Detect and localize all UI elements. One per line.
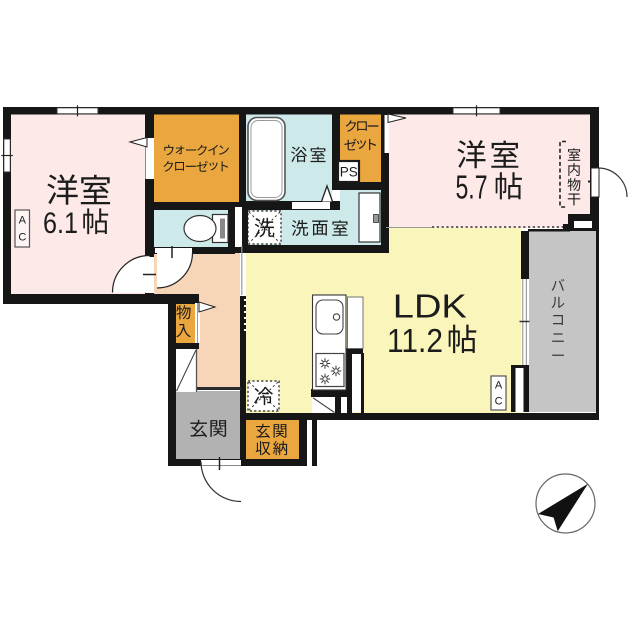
svg-text:PS: PS	[340, 164, 358, 179]
svg-text:C: C	[495, 395, 503, 407]
svg-text:A: A	[495, 379, 503, 391]
svg-text:C: C	[18, 231, 26, 243]
svg-text:6.1: 6.1	[43, 207, 78, 240]
svg-text:5.7: 5.7	[456, 169, 488, 206]
svg-text:A: A	[19, 214, 27, 226]
svg-text:LDK: LDK	[393, 288, 467, 325]
svg-text:11.2: 11.2	[387, 322, 443, 359]
